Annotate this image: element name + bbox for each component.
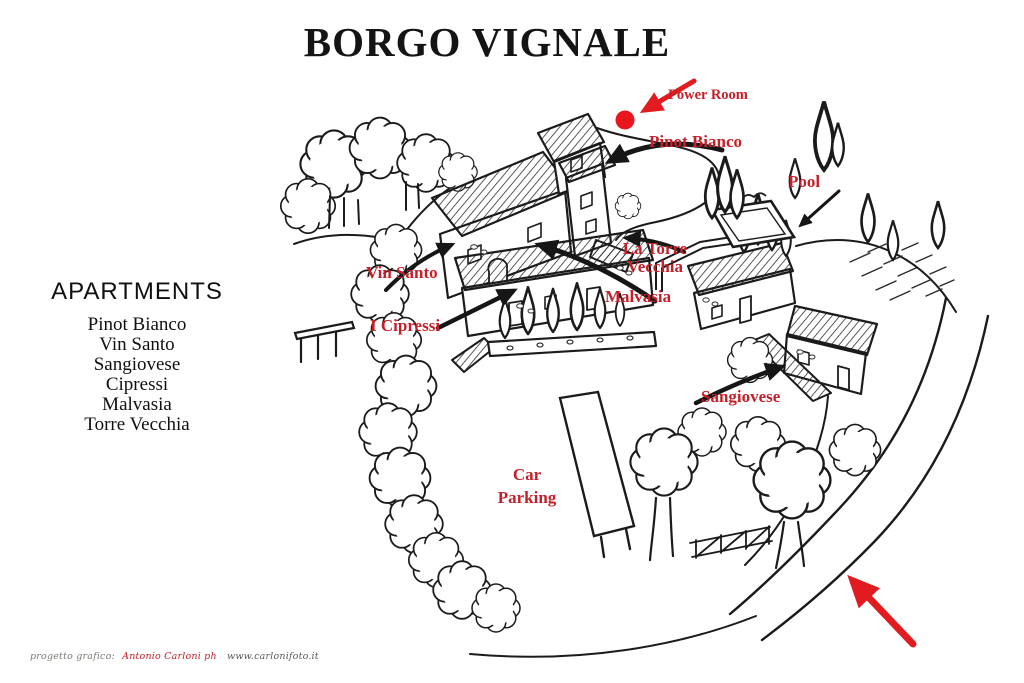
page-title: BORGO VIGNALE [304, 18, 671, 66]
label-torre-vecchia: La Torre Vecchia [623, 240, 687, 276]
power-room-dot [616, 111, 635, 130]
apartment-item-sangiovese: Sangiovese [51, 355, 223, 375]
credit-prefix: progetto grafico: [30, 651, 115, 662]
car-parking-structure [560, 392, 634, 557]
small-bush [615, 193, 641, 219]
label-torre-vecchia-line1: La Torre [623, 240, 687, 258]
fence-gate [690, 526, 772, 558]
label-vin-santo: Vin Santo [366, 263, 438, 283]
label-malvasia: Malvasia [605, 287, 671, 307]
label-power-room: Power Room [668, 87, 748, 104]
label-i-cipressi: I Cipressi [370, 316, 440, 336]
pergola [295, 322, 354, 362]
label-car-parking: Car Parking [498, 463, 557, 509]
apartments-legend: APARTMENTS Pinot Bianco Vin Santo Sangio… [51, 278, 223, 435]
label-pool: Pool [788, 172, 820, 192]
apartment-item-torre-vecchia: Torre Vecchia [51, 415, 223, 435]
credit-line: progetto grafico: Antonio Carloni ph www… [30, 651, 319, 662]
apartments-heading: APARTMENTS [51, 278, 223, 306]
label-torre-vecchia-line2: Vecchia [623, 258, 687, 276]
label-car-parking-line2: Parking [498, 486, 557, 509]
pool-area [705, 102, 944, 260]
apartment-item-cipressi: Cipressi [51, 375, 223, 395]
apartment-item-vin-santo: Vin Santo [51, 335, 223, 355]
credit-name: Antonio Carloni ph [122, 651, 217, 662]
label-sangiovese: Sangiovese [701, 387, 780, 407]
apartment-item-pinot-bianco: Pinot Bianco [51, 315, 223, 335]
label-pinot-bianco: Pinot Bianco [649, 132, 742, 152]
entrance-arrow [853, 581, 913, 644]
credit-site: www.carlonifoto.it [227, 651, 319, 662]
hill-hatching [850, 243, 954, 300]
apartment-item-malvasia: Malvasia [51, 395, 223, 415]
borgo-vignale-map-page: BORGO VIGNALE APARTMENTS Pinot Bianco Vi… [0, 0, 1024, 683]
arrow-pool [801, 191, 839, 225]
bush [728, 338, 773, 383]
label-car-parking-line1: Car [498, 463, 557, 486]
bush [829, 424, 880, 475]
